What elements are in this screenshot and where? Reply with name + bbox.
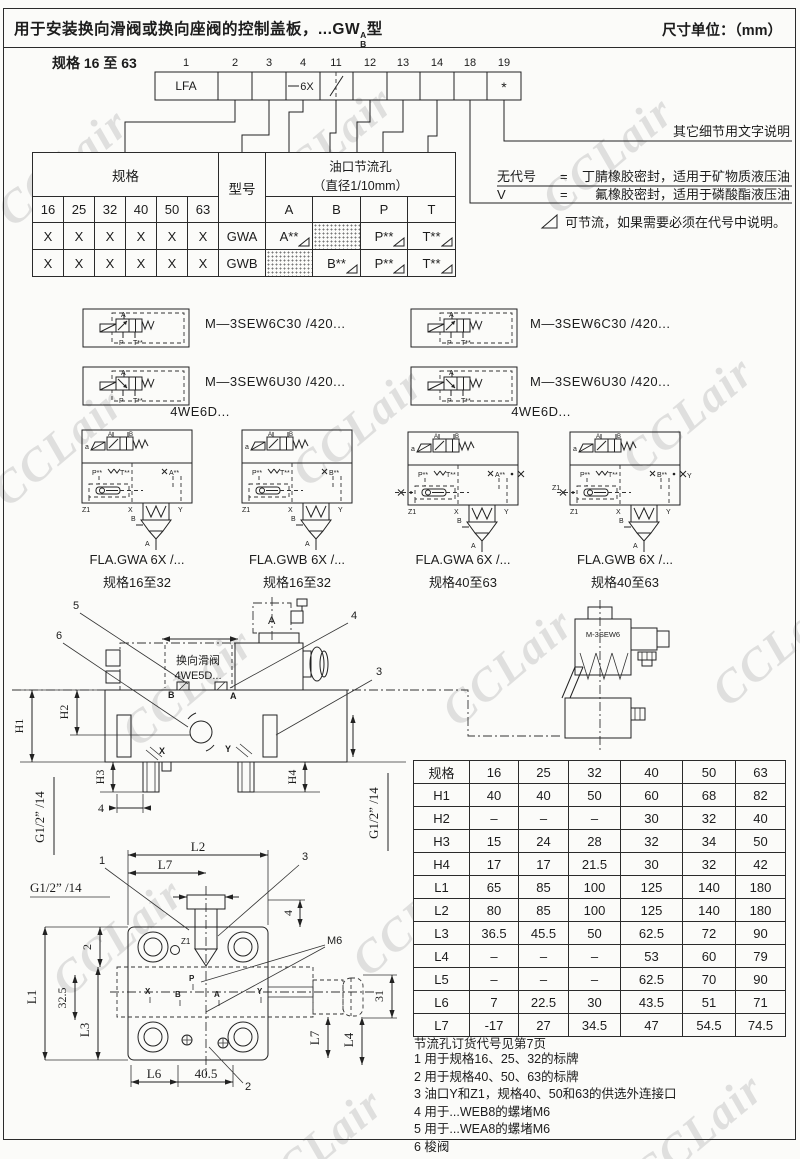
callout-1: 1 bbox=[99, 855, 105, 867]
note-line: 4 用于...WEB8的螺堵M6 bbox=[414, 1104, 677, 1122]
port-a-label: A bbox=[121, 370, 126, 377]
mark-cell: X bbox=[188, 250, 219, 277]
value-cell: 36.5 bbox=[470, 922, 519, 945]
value-cell: – bbox=[470, 968, 519, 991]
throttle-flag-icon bbox=[441, 237, 453, 247]
svg-text:无代号: 无代号 bbox=[497, 169, 536, 184]
value-cell: 30 bbox=[621, 807, 683, 830]
svg-text:14: 14 bbox=[431, 57, 443, 69]
port-p-label: P bbox=[189, 974, 195, 983]
dim-g-left: G1/2” /14 bbox=[32, 791, 47, 843]
value-cell: 54.5 bbox=[683, 1014, 736, 1037]
port-b-cell: B** bbox=[313, 250, 361, 277]
port-a-label: A bbox=[230, 691, 237, 701]
cartridge-b: B bbox=[291, 516, 296, 523]
notes-list: 1 用于规格16、25、32的标牌2 用于规格40、50、63的标牌3 油口Y和… bbox=[414, 1051, 677, 1156]
dim-header-cell: 40 bbox=[621, 761, 683, 784]
y-external-label: Y bbox=[687, 473, 692, 480]
pilot-a: A bbox=[434, 434, 438, 440]
svg-text:丁腈橡胶密封，适用于矿物质液压油: 丁腈橡胶密封，适用于矿物质液压油 bbox=[582, 169, 790, 184]
value-cell: 40 bbox=[519, 784, 569, 807]
value-cell: 60 bbox=[621, 784, 683, 807]
value-cell: 34.5 bbox=[569, 1014, 621, 1037]
code-boxes: LFA 6X * bbox=[155, 72, 521, 100]
gwa-row: X X X X X X GWA A** P** T** bbox=[33, 223, 456, 250]
port-t-label: T** bbox=[133, 340, 143, 347]
mark-cell: X bbox=[33, 223, 64, 250]
circuit-title: FLA.GWA 6X /... bbox=[383, 552, 543, 567]
seal-code-none: 无代号 = 丁腈橡胶密封，适用于矿物质液压油 bbox=[497, 169, 790, 184]
throttle-symbol bbox=[330, 72, 343, 100]
callout-m6: M6 bbox=[327, 935, 342, 947]
circuit-subtitle: 规格40至63 bbox=[545, 572, 705, 591]
plate-outline: Z1 X B P A Y bbox=[117, 895, 363, 1060]
solenoid-label: a bbox=[245, 444, 249, 451]
code-box-star: * bbox=[501, 79, 507, 95]
svg-text:2: 2 bbox=[232, 57, 238, 69]
model-cell: GWB bbox=[219, 250, 266, 277]
value-cell: – bbox=[519, 945, 569, 968]
value-cell: 34 bbox=[683, 830, 736, 853]
cartridge-valve: A B bbox=[291, 503, 331, 550]
dim-header-cell: 25 bbox=[519, 761, 569, 784]
orifice-header-line1: 油口节流孔 bbox=[266, 156, 455, 175]
port-t: T** bbox=[280, 470, 290, 477]
value-cell: 32 bbox=[683, 853, 736, 876]
value-cell: 65 bbox=[470, 876, 519, 899]
solenoid-valve-outline: M-3SEW6 bbox=[562, 607, 669, 738]
svg-text:V: V bbox=[497, 187, 506, 202]
z1-external-label: Z1 bbox=[552, 485, 560, 492]
port-x: X bbox=[616, 509, 621, 516]
port-x: X bbox=[288, 507, 293, 514]
port-col-cell: T bbox=[408, 197, 456, 223]
value-cell: – bbox=[470, 945, 519, 968]
port-x: X bbox=[128, 507, 133, 514]
value-cell: 125 bbox=[621, 876, 683, 899]
dim-table-header-row: 规格 16 25 32 40 50 63 bbox=[414, 761, 786, 784]
row-label-cell: H1 bbox=[414, 784, 470, 807]
port-x: X bbox=[454, 509, 459, 516]
dim-2: 2 bbox=[80, 944, 94, 950]
circuit-title: FLA.GWB 6X /... bbox=[545, 552, 705, 567]
value-cell: 68 bbox=[683, 784, 736, 807]
table-row: L16585100125140180 bbox=[414, 876, 786, 899]
port-y-label: Y bbox=[225, 744, 231, 754]
dim-l6: L6 bbox=[147, 1066, 162, 1081]
value-cell: – bbox=[569, 968, 621, 991]
row-label-cell: L4 bbox=[414, 945, 470, 968]
value-cell: 74.5 bbox=[736, 1014, 786, 1037]
pilot-b: B bbox=[455, 434, 459, 440]
port-p-label: P bbox=[447, 340, 452, 347]
circuit-gwb-16-32: a A B P** T** B** Z1 X Y A B bbox=[237, 428, 362, 556]
cartridge-b: B bbox=[457, 518, 462, 525]
value-cell: 22.5 bbox=[519, 991, 569, 1014]
svg-text:11: 11 bbox=[330, 57, 341, 69]
port-t-cell: T** bbox=[408, 223, 456, 250]
throttle-footnote: 可节流，如果需要必须在代号中说明。 bbox=[542, 215, 786, 230]
value-cell: 90 bbox=[736, 968, 786, 991]
dim-4: 4 bbox=[98, 801, 104, 815]
page-title: 用于安装换向滑阀或换向座阀的控制盖板，...GWAB型 bbox=[14, 17, 383, 48]
circuit-subtitle: 规格16至32 bbox=[57, 572, 217, 591]
table-row: H3152428323450 bbox=[414, 830, 786, 853]
port-z1: Z1 bbox=[82, 507, 90, 514]
row-label-cell: L7 bbox=[414, 1014, 470, 1037]
seal-code-v: V = 氟橡胶密封，适用于磷酸酯液压油 bbox=[497, 187, 790, 202]
value-cell: – bbox=[569, 807, 621, 830]
port-y: Y bbox=[666, 509, 671, 516]
value-cell: 140 bbox=[683, 899, 736, 922]
pilot-a: A bbox=[268, 432, 272, 438]
cartridge-a: A bbox=[471, 543, 476, 550]
circuit-subtitle: 规格16至32 bbox=[217, 572, 377, 591]
value-cell: 80 bbox=[470, 899, 519, 922]
pilot-b: B bbox=[289, 432, 293, 438]
value-cell: 28 bbox=[569, 830, 621, 853]
value-cell: 71 bbox=[736, 991, 786, 1014]
value-cell: 82 bbox=[736, 784, 786, 807]
size-cell: 32 bbox=[95, 197, 126, 223]
table-row: H1404050606882 bbox=[414, 784, 786, 807]
throttle-flag-icon bbox=[393, 237, 405, 247]
pilot-a: A bbox=[108, 432, 112, 438]
dimensions: L2 L7 G1/2” /14 2 L1 32.5 L3 4 bbox=[24, 840, 397, 1087]
table-row: L4–––536079 bbox=[414, 945, 786, 968]
port-t-label: T** bbox=[461, 340, 471, 347]
side-view-drawing: 换向滑阀 4WE5D... A bbox=[10, 595, 410, 860]
solenoid-label: a bbox=[573, 446, 577, 453]
value-cell: 30 bbox=[569, 991, 621, 1014]
callout-5: 5 bbox=[73, 600, 79, 612]
note-line: 2 用于规格40、50、63的标牌 bbox=[414, 1069, 677, 1087]
dim-header-cell: 50 bbox=[683, 761, 736, 784]
other-details-note: 其它细节用文字说明 bbox=[673, 124, 790, 139]
coil-connector: A bbox=[253, 597, 307, 643]
value-cell: 7 bbox=[470, 991, 519, 1014]
value-cell: 140 bbox=[683, 876, 736, 899]
pilot-footer-left: 4WE6D... bbox=[155, 404, 245, 419]
port-z1: Z1 bbox=[570, 509, 578, 516]
port-value: A** bbox=[280, 229, 299, 244]
pilot-symbol-c30-left: A P T** bbox=[82, 308, 190, 348]
dim-40-5: 40.5 bbox=[195, 1066, 218, 1081]
cartridge-valve: A B bbox=[619, 505, 659, 552]
code-box-lfa: LFA bbox=[175, 79, 196, 93]
value-cell: 50 bbox=[736, 830, 786, 853]
value-cell: 30 bbox=[621, 853, 683, 876]
dim-h4: H4 bbox=[285, 770, 299, 785]
table-row: L7-172734.54754.574.5 bbox=[414, 1014, 786, 1037]
dim-l3: L3 bbox=[77, 1023, 92, 1037]
orifice-header-line2: （直径1/10mm） bbox=[266, 175, 455, 194]
table-row: L28085100125140180 bbox=[414, 899, 786, 922]
value-cell: 53 bbox=[621, 945, 683, 968]
y-external-mark bbox=[518, 471, 524, 477]
circuit-gwa-16-32: a A B P** T** A** Z1 X Y A B bbox=[77, 428, 202, 556]
orifice-header-cell: 油口节流孔 （直径1/10mm） bbox=[266, 153, 456, 197]
port-p-label: P bbox=[119, 398, 124, 405]
row-label-cell: L1 bbox=[414, 876, 470, 899]
size-cell: 40 bbox=[126, 197, 157, 223]
svg-text:12: 12 bbox=[364, 57, 376, 69]
value-cell: – bbox=[470, 807, 519, 830]
port-col-cell: A bbox=[266, 197, 313, 223]
pilot-label-u30-right: M—3SEW6U30 /420... bbox=[530, 374, 671, 389]
cartridge-b: B bbox=[619, 518, 624, 525]
throttle-flag-icon bbox=[393, 264, 405, 274]
mark-cell: X bbox=[126, 223, 157, 250]
dim-h3: H3 bbox=[93, 770, 107, 785]
row-label-cell: H2 bbox=[414, 807, 470, 830]
svg-text:=: = bbox=[560, 169, 568, 184]
title-suffix: 型 bbox=[367, 21, 383, 38]
port-p: P** bbox=[418, 472, 428, 479]
circuit-gwb-40-63: a A B P** T** B** Y Z1 Z1 X Y bbox=[552, 430, 692, 558]
value-cell: 60 bbox=[683, 945, 736, 968]
circuit-gwa-40-63: a A B P** T** A** Z1 X Y bbox=[390, 430, 530, 558]
port-value: B** bbox=[327, 256, 346, 271]
model-header-cell: 型号 bbox=[219, 153, 266, 223]
port-y: Y bbox=[178, 507, 183, 514]
cover-plate: B A X Y bbox=[105, 682, 347, 792]
callout-3: 3 bbox=[302, 851, 308, 863]
mark-cell: X bbox=[95, 223, 126, 250]
callout-6: 6 bbox=[56, 630, 62, 642]
mark-cell: X bbox=[33, 250, 64, 277]
value-cell: 40 bbox=[470, 784, 519, 807]
dim-l2: L2 bbox=[191, 840, 205, 854]
dim-header-cell: 16 bbox=[470, 761, 519, 784]
spec-header-cell: 规格 bbox=[33, 153, 219, 197]
callout-4: 4 bbox=[351, 610, 357, 622]
solenoid-valve-drawing: M-3SEW6 bbox=[410, 595, 795, 755]
gwb-row: X X X X X X GWB B** P** T** bbox=[33, 250, 456, 277]
port-p-cell: P** bbox=[361, 250, 408, 277]
port-t: T** bbox=[608, 472, 618, 479]
pilot-label-c30-left: M—3SEW6C30 /420... bbox=[205, 316, 346, 331]
units-label: 尺寸单位：（mm） bbox=[662, 19, 782, 40]
row-label-cell: L2 bbox=[414, 899, 470, 922]
note-line: 6 梭阀 bbox=[414, 1139, 677, 1157]
port-t: T** bbox=[446, 472, 456, 479]
port-b-label: B bbox=[168, 690, 175, 700]
throttle-flag-icon bbox=[441, 264, 453, 274]
value-cell: – bbox=[519, 807, 569, 830]
port-b-label: B bbox=[175, 990, 181, 999]
port-value: P** bbox=[375, 229, 394, 244]
value-cell: 90 bbox=[736, 922, 786, 945]
port-value: P** bbox=[375, 256, 394, 271]
mark-cell: X bbox=[64, 223, 95, 250]
svg-text:13: 13 bbox=[397, 57, 409, 69]
table-row: H4171721.5303242 bbox=[414, 853, 786, 876]
port-t-label: T** bbox=[461, 398, 471, 405]
value-cell: 72 bbox=[683, 922, 736, 945]
value-cell: 24 bbox=[519, 830, 569, 853]
port-p-label: P bbox=[119, 340, 124, 347]
port-p-cell: P** bbox=[361, 223, 408, 250]
table-row: L5–––62.57090 bbox=[414, 968, 786, 991]
value-cell: 125 bbox=[621, 899, 683, 922]
note-line: 3 油口Y和Z1，规格40、50和63的供选外连接口 bbox=[414, 1086, 677, 1104]
dim-32-5: 32.5 bbox=[55, 988, 69, 1009]
value-cell: 45.5 bbox=[519, 922, 569, 945]
value-cell: 85 bbox=[519, 899, 569, 922]
throttle-flag-icon bbox=[298, 237, 310, 247]
value-cell: 15 bbox=[470, 830, 519, 853]
table-row: L336.545.55062.57290 bbox=[414, 922, 786, 945]
cartridge-a: A bbox=[145, 541, 150, 548]
value-cell: 62.5 bbox=[621, 968, 683, 991]
cartridge-a: A bbox=[633, 543, 638, 550]
value-cell: – bbox=[519, 968, 569, 991]
solenoid-model-label: M-3SEW6 bbox=[586, 630, 620, 639]
port-a-label: A bbox=[449, 370, 454, 377]
side-port: A** bbox=[495, 472, 505, 479]
value-cell: 79 bbox=[736, 945, 786, 968]
circuit-title: FLA.GWB 6X /... bbox=[217, 552, 377, 567]
pilot-label-c30-right: M—3SEW6C30 /420... bbox=[530, 316, 671, 331]
valve-name-label: 换向滑阀 bbox=[176, 653, 220, 667]
dim-table-body: H1404050606882H2–––303240H3152428323450H… bbox=[414, 784, 786, 1037]
value-cell: 180 bbox=[736, 876, 786, 899]
dim-header-cell: 32 bbox=[569, 761, 621, 784]
value-cell: -17 bbox=[470, 1014, 519, 1037]
port-col-cell: B bbox=[313, 197, 361, 223]
value-cell: 27 bbox=[519, 1014, 569, 1037]
model-cell: GWA bbox=[219, 223, 266, 250]
spec-table: 规格 型号 油口节流孔 （直径1/10mm） 16 25 32 40 50 63… bbox=[32, 152, 456, 277]
value-cell: 32 bbox=[683, 807, 736, 830]
value-cell: 43.5 bbox=[621, 991, 683, 1014]
size-cell: 16 bbox=[33, 197, 64, 223]
cartridge-b: B bbox=[131, 516, 136, 523]
port-y-label: Y bbox=[257, 987, 263, 996]
port-y: Y bbox=[338, 507, 343, 514]
port-value: T** bbox=[422, 229, 440, 244]
value-cell: 40 bbox=[736, 807, 786, 830]
row-label-cell: H3 bbox=[414, 830, 470, 853]
port-y: Y bbox=[504, 509, 509, 516]
port-z1-label: Z1 bbox=[181, 937, 191, 946]
size-cell: 63 bbox=[188, 197, 219, 223]
throttle-flag-icon bbox=[346, 264, 358, 274]
solenoid-label: a bbox=[411, 446, 415, 453]
svg-text:氟橡胶密封，适用于磷酸酯液压油: 氟橡胶密封，适用于磷酸酯液压油 bbox=[595, 187, 790, 202]
port-x-label: X bbox=[159, 746, 165, 756]
value-cell: 85 bbox=[519, 876, 569, 899]
port-z1: Z1 bbox=[408, 509, 416, 516]
port-p-label: P bbox=[447, 398, 452, 405]
pilot-label-u30-left: M—3SEW6U30 /420... bbox=[205, 374, 346, 389]
svg-text:4: 4 bbox=[300, 57, 306, 69]
title-text: 用于安装换向滑阀或换向座阀的控制盖板，...GW bbox=[14, 21, 360, 38]
pilot-b: B bbox=[617, 434, 621, 440]
pilot-symbol-u30-right: A P T** bbox=[410, 366, 518, 406]
port-p: P** bbox=[252, 470, 262, 477]
dim-31: 31 bbox=[372, 990, 386, 1002]
value-cell: 17 bbox=[519, 853, 569, 876]
table-row: L6722.53043.55171 bbox=[414, 991, 786, 1014]
mark-cell: X bbox=[157, 223, 188, 250]
mark-cell: X bbox=[157, 250, 188, 277]
dim-h1: H1 bbox=[12, 719, 26, 734]
spec-range-label: 规格 16 至 63 bbox=[52, 55, 137, 71]
callouts: 1 3 M6 2 bbox=[99, 851, 342, 1093]
title-ab-stack: AB bbox=[360, 31, 367, 48]
port-a-cell: A** bbox=[266, 223, 313, 250]
value-cell: 100 bbox=[569, 899, 621, 922]
row-label-cell: L6 bbox=[414, 991, 470, 1014]
value-cell: 70 bbox=[683, 968, 736, 991]
table-row: H2–––303240 bbox=[414, 807, 786, 830]
svg-text:18: 18 bbox=[464, 57, 476, 69]
port-a-label: A bbox=[214, 990, 220, 999]
dim-l7-top: L7 bbox=[158, 857, 173, 872]
port-col-cell: P bbox=[361, 197, 408, 223]
dim-4: 4 bbox=[281, 910, 295, 916]
dim-g-right: G1/2” /14 bbox=[366, 787, 381, 839]
value-cell: 21.5 bbox=[569, 853, 621, 876]
row-label-cell: H4 bbox=[414, 853, 470, 876]
note-line: 1 用于规格16、25、32的标牌 bbox=[414, 1051, 677, 1069]
port-a-label: A bbox=[121, 312, 126, 319]
value-cell: 62.5 bbox=[621, 922, 683, 945]
circuit-title: FLA.GWA 6X /... bbox=[57, 552, 217, 567]
dim-l7-right: L7 bbox=[307, 1030, 322, 1045]
cartridge-valve: A B bbox=[457, 505, 497, 552]
port-t: T** bbox=[120, 470, 130, 477]
mark-cell: X bbox=[95, 250, 126, 277]
port-z1: Z1 bbox=[242, 507, 250, 514]
port-t-label: T** bbox=[133, 398, 143, 405]
port-t-cell: T** bbox=[408, 250, 456, 277]
dim-h2: H2 bbox=[57, 705, 71, 720]
pilot-symbol-c30-right: A P T** bbox=[410, 308, 518, 348]
datasheet-page: CCLair CCLair CCLair CCLair CCLair CCLai… bbox=[0, 0, 800, 1159]
row-label-cell: L5 bbox=[414, 968, 470, 991]
size-cell: 50 bbox=[157, 197, 188, 223]
side-port: B** bbox=[329, 470, 339, 477]
spec-table-header-row: 规格 型号 油口节流孔 （直径1/10mm） bbox=[33, 153, 456, 197]
throttle-triangle-icon bbox=[542, 215, 557, 228]
port-b-blocked-cell bbox=[313, 223, 361, 250]
pilot-a: A bbox=[596, 434, 600, 440]
size-cell: 25 bbox=[64, 197, 95, 223]
dim-l4: L4 bbox=[341, 1032, 356, 1047]
mark-cell: X bbox=[188, 223, 219, 250]
value-cell: 42 bbox=[736, 853, 786, 876]
dimension-table: 规格 16 25 32 40 50 63 H1404050606882H2–––… bbox=[413, 760, 786, 1037]
side-port: B** bbox=[657, 472, 667, 479]
pilot-symbol-u30-left: A P T** bbox=[82, 366, 190, 406]
port-a-label: A bbox=[449, 312, 454, 319]
code-position-numbers: 1 2 3 4 11 12 13 14 18 19 bbox=[183, 57, 510, 69]
circuit-subtitle: 规格40至63 bbox=[383, 572, 543, 591]
code-box-6x: 6X bbox=[300, 81, 314, 93]
dim-header-cell: 63 bbox=[736, 761, 786, 784]
pilot-footer-right: 4WE6D... bbox=[496, 404, 586, 419]
side-port: A** bbox=[169, 470, 179, 477]
svg-text:可节流，如果需要必须在代号中说明。: 可节流，如果需要必须在代号中说明。 bbox=[565, 215, 786, 230]
solenoid-label: a bbox=[85, 444, 89, 451]
callout-3: 3 bbox=[376, 666, 382, 678]
mark-cell: X bbox=[64, 250, 95, 277]
note-line: 5 用于...WEA8的螺堵M6 bbox=[414, 1121, 677, 1139]
value-cell: 51 bbox=[683, 991, 736, 1014]
